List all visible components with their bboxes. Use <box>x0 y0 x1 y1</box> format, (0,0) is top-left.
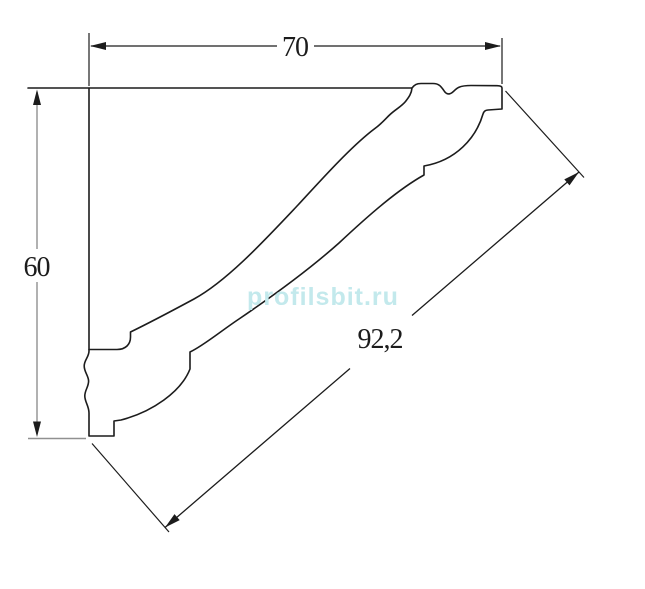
diagonal-dimension-label: 92,2 <box>358 324 403 355</box>
width-arrow-left-icon <box>90 42 106 50</box>
width-arrow-right-icon <box>485 42 501 50</box>
height-arrow-down-icon <box>33 422 41 438</box>
molding-profile-outline <box>84 84 502 437</box>
drawing-svg: 70 60 92,2 profilsbit.ru <box>0 0 645 589</box>
diagonal-extension-bottom <box>92 444 169 533</box>
diagonal-dimension: 92,2 <box>92 91 584 532</box>
height-dimension: 60 <box>24 90 87 439</box>
height-arrow-up-icon <box>33 90 41 106</box>
watermark-text: profilsbit.ru <box>247 283 399 311</box>
width-dimension: 70 <box>89 32 502 86</box>
height-dimension-label: 60 <box>24 252 50 283</box>
diagonal-extension-top <box>506 91 585 178</box>
molding-profile-drawing: 70 60 92,2 profilsbit.ru <box>0 0 645 589</box>
width-dimension-label: 70 <box>282 32 308 63</box>
